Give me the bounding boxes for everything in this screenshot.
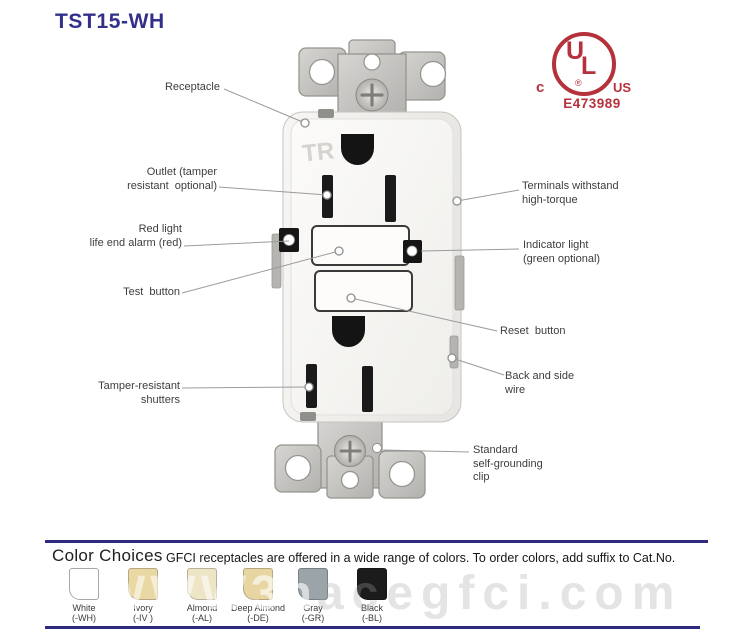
color-option-almond: Almond (-AL) xyxy=(170,568,234,624)
color-suffix: (-AL) xyxy=(170,613,234,624)
divider-top xyxy=(45,540,708,543)
reset-button[interactable] xyxy=(315,271,412,311)
callout-label-grounding-clip: Standard self-grounding clip xyxy=(473,444,563,485)
tr-marking: TR xyxy=(301,137,336,167)
strap-ear-hole xyxy=(310,60,335,85)
indicator-led xyxy=(403,240,422,263)
color-swatch xyxy=(187,568,217,600)
color-name: Black xyxy=(340,603,404,613)
color-suffix: (-IV ) xyxy=(111,613,175,624)
side-terminal-right xyxy=(455,256,464,310)
color-option-ivory: Ivory (-IV ) xyxy=(111,568,175,624)
color-suffix: (-BL) xyxy=(340,613,404,624)
mounting-screw-bottom xyxy=(335,436,366,467)
color-suffix: (-WH) xyxy=(52,613,116,624)
callout-label-red-light: Red light life end alarm (red) xyxy=(78,223,182,250)
callout-label-receptacle: Receptacle xyxy=(120,81,220,95)
color-suffix: (-GR) xyxy=(281,613,345,624)
strap-hole xyxy=(342,472,359,489)
callout-label-test-button: Test button xyxy=(80,286,180,300)
side-terminal-right-lower xyxy=(450,336,458,368)
callout-label-back-side-wire: Back and side wire xyxy=(505,370,605,397)
color-option-black: Black (-BL) xyxy=(340,568,404,624)
color-swatch xyxy=(69,568,99,600)
shutter-slot-right xyxy=(362,366,373,412)
color-name: Almond xyxy=(170,603,234,613)
body-top-slot xyxy=(318,109,334,118)
product-sheet: TST15-WH U L ® c US E473989 xyxy=(0,0,750,635)
callout-label-tamper-shutters: Tamper-resistant shutters xyxy=(80,380,180,407)
strap-ear-hole xyxy=(421,62,446,87)
body-bottom-slot xyxy=(300,412,316,421)
strap-ear-hole xyxy=(390,462,415,487)
color-choices-heading: Color Choices xyxy=(52,546,163,566)
strap-ear-hole xyxy=(286,456,311,481)
red-life-end-led xyxy=(279,228,299,252)
color-swatch xyxy=(298,568,328,600)
outlet-slot-right xyxy=(385,175,396,222)
color-swatch xyxy=(128,568,158,600)
self-grounding-clip-hole xyxy=(373,444,382,453)
color-name: Ivory xyxy=(111,603,175,613)
mounting-screw-top xyxy=(356,79,388,111)
divider-bottom xyxy=(45,626,700,629)
color-option-white: White (-WH) xyxy=(52,568,116,624)
test-button[interactable] xyxy=(312,226,409,265)
callout-label-outlet: Outlet (tamper resistant optional) xyxy=(117,166,217,193)
strap-hole xyxy=(364,54,380,70)
color-option-gray: Gray (-GR) xyxy=(281,568,345,624)
color-choices-description: GFCI receptacles are offered in a wide r… xyxy=(166,551,675,565)
color-swatch xyxy=(243,568,273,600)
color-name: Gray xyxy=(281,603,345,613)
color-name: White xyxy=(52,603,116,613)
callout-label-terminals: Terminals withstand high-torque xyxy=(522,180,642,207)
color-swatch xyxy=(357,568,387,600)
callout-label-indicator-light: Indicator light (green optional) xyxy=(523,239,633,266)
callout-label-reset-button: Reset button xyxy=(500,325,600,339)
